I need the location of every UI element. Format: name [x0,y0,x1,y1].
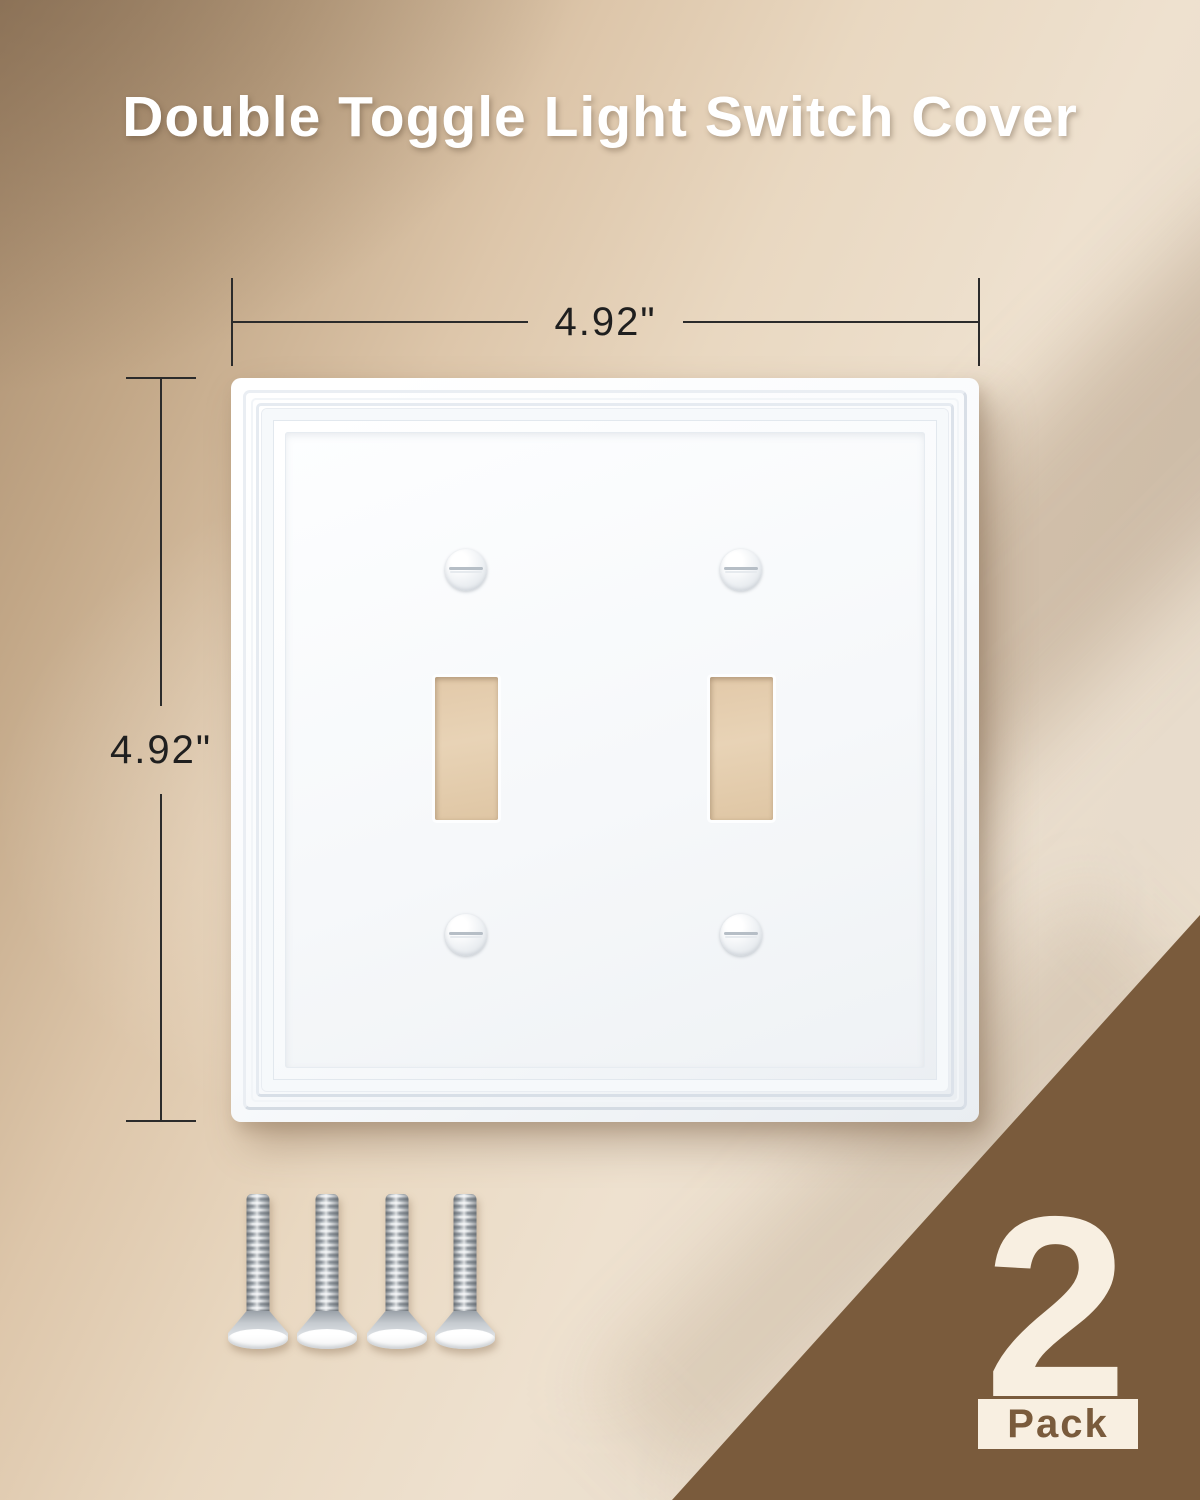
mounting-screw [297,1194,357,1354]
screw-cap [435,1329,495,1349]
screw-shaft [386,1194,409,1314]
product-image: Double Toggle Light Switch Cover 4.92" 4… [0,0,1200,1500]
dimension-line-segment [160,379,162,706]
screw-shaft [454,1194,477,1314]
wall-plate [231,378,979,1122]
page-title: Double Toggle Light Switch Cover [0,84,1200,150]
plate-screw-top-right [720,549,762,591]
plate-inner-panel [285,432,925,1068]
plate-screw-bottom-left [445,914,487,956]
height-dimension: 4.92" [126,377,196,1122]
dimension-line-segment [683,321,978,323]
mounting-screw [367,1194,427,1354]
screw-cap [228,1329,288,1349]
screw-cap [297,1329,357,1349]
dimension-tick-bottom [126,1120,196,1122]
pack-count: 2 [956,1178,1156,1436]
mounting-screw [435,1194,495,1354]
dimension-line-segment [233,321,528,323]
width-dimension-label: 4.92" [554,302,656,342]
plate-screw-bottom-right [720,914,762,956]
toggle-cutout-right [710,677,773,820]
screw-cap [367,1329,427,1349]
plate-screw-top-left [445,549,487,591]
height-dimension-label: 4.92" [110,730,212,770]
screw-shaft [316,1194,339,1314]
pack-badge: Pack [978,1399,1138,1449]
dimension-line-segment [160,794,162,1121]
toggle-cutout-left [435,677,498,820]
screw-shaft [247,1194,270,1314]
dimension-tick-right [978,278,980,366]
mounting-screw [228,1194,288,1354]
pack-label: Pack [1007,1404,1108,1444]
width-dimension: 4.92" [231,278,980,366]
